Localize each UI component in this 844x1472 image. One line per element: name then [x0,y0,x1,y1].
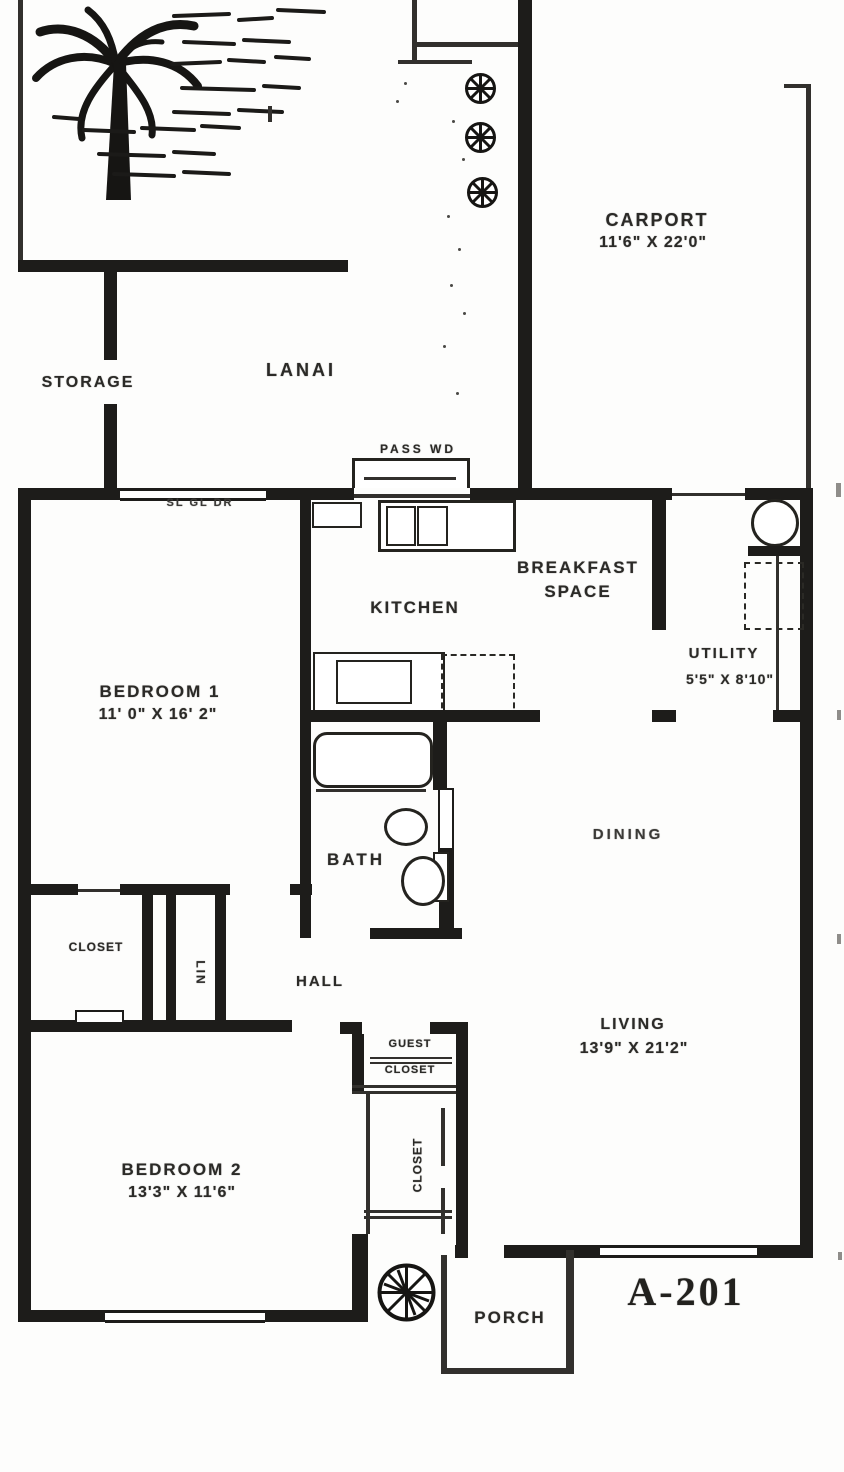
room-label-linen: LIN [194,960,208,985]
entry-wall [412,0,417,62]
room-label-hall: HALL [296,973,344,990]
room-label-guest-closet-1: GUEST [389,1038,432,1050]
room-label-utility: UTILITY [689,645,760,662]
room-label-breakfast-2: SPACE [544,582,611,602]
south-wall [757,1245,813,1258]
room-label-porch: PORCH [474,1308,545,1328]
utility-wall [748,546,808,556]
ground-dot [463,312,466,315]
porch-wall [566,1250,574,1374]
yard-border-wall [18,0,23,262]
scan-artifact [837,710,841,720]
kitchen-range [336,660,412,704]
guest-closet-wall [352,1034,364,1092]
guest-closet-wall [340,1022,362,1034]
door-threshold [78,889,120,892]
room-dims-bedroom2: 13'3" X 11'6" [128,1184,236,1202]
door-threshold [672,493,745,496]
porch-wall [441,1255,447,1373]
shrub-icon [464,72,497,105]
storage-wall [104,260,117,360]
bath-top-wall [300,710,540,722]
room-label-guest-closet-2: CLOSET [385,1064,436,1076]
storage-wall [104,404,117,500]
south-wall [504,1245,600,1258]
room-dims-bedroom1: 11' 0" X 16' 2" [99,706,218,724]
room-label-closet1: CLOSET [69,940,124,954]
hall-bottom-wall [18,1020,292,1032]
bathtub [313,732,433,788]
lanai-top-wall [18,260,348,272]
closet-wall [215,893,226,1024]
ground-dot [404,82,407,85]
ground-dot [452,120,455,123]
closet-door-line [366,1094,370,1234]
kitchen-cabinet [312,502,362,528]
room-label-bedroom1: BEDROOM 1 [100,682,221,702]
utility-wall [773,710,813,722]
kitchen-sink-bowl [386,506,416,546]
room-dims-utility: 5'5" X 8'10" [686,671,774,687]
room-dims-carport: 11'6" X 22'0" [599,234,707,252]
carport-edge [784,84,811,88]
west-wall [18,488,31,1322]
ground-dot [456,392,459,395]
window [105,1310,265,1323]
closet-shelf-line [370,1057,452,1059]
kitchen-sink-bowl [417,506,448,546]
room-label-closet2: CLOSET [410,1138,424,1193]
sliding-door-label: SL GL DR [167,497,234,509]
hall-top-wall [18,884,78,895]
ground-dot [450,284,453,287]
scan-artifact [836,483,841,497]
bathtub-edge [316,789,426,792]
room-label-bath: BATH [327,850,385,870]
shrub-icon [464,121,497,154]
closet-shelf-line [364,1210,452,1213]
room-label-bedroom2: BEDROOM 2 [122,1160,243,1180]
yard-mark [268,106,272,122]
ground-dot [443,345,446,348]
carport-divider-wall [518,0,532,492]
room-label-storage: STORAGE [42,374,135,392]
floor-plan-sheet: CARPORT 11'6" X 22'0" STORAGE LANAI SL G… [0,0,844,1472]
carport-edge [806,84,811,490]
closet-shelf-line [364,1216,452,1219]
room-label-carport: CARPORT [606,210,709,231]
pass-through-window-line [364,477,456,480]
ground-dot [396,100,399,103]
south-wall [18,1310,105,1322]
room-label-kitchen: KITCHEN [370,598,460,618]
bath-door [438,788,454,852]
closet-wall-line [352,1085,456,1088]
pass-through-window [352,458,470,488]
north-wall [532,488,672,500]
washer-dryer-dashed [744,562,804,630]
room-dims-living: 13'9" X 21'2" [580,1040,689,1058]
door-threshold [75,1010,124,1024]
unit-number: A-201 [627,1268,744,1315]
utility-wall [652,710,676,722]
pass-window-sill [354,494,470,498]
tree-icon [376,1262,437,1323]
room-label-breakfast-1: BREAKFAST [517,558,639,578]
scan-artifact [837,934,841,944]
ground-dot [447,215,450,218]
window [600,1245,757,1258]
bath-bottom-wall [370,928,462,939]
refrigerator-dashed [441,654,515,718]
utility-partition [776,556,779,712]
room-label-lanai: LANAI [266,360,336,381]
closet-wall [166,893,176,1024]
pass-window-label: PASS WD [380,442,456,456]
entry-wall [412,42,520,47]
toilet [401,856,445,906]
north-wall [18,488,120,500]
closet-door-line [441,1108,445,1166]
ground-dot [462,158,465,161]
entry-wall [398,60,472,64]
ground-dot [458,248,461,251]
shrub-icon [466,176,499,209]
breakfast-utility-wall [652,488,666,630]
bedroom2-east-wall [352,1234,368,1322]
palm-tree-illustration [24,2,364,207]
north-wall [470,488,532,500]
south-wall [455,1245,468,1258]
south-wall [265,1310,358,1322]
room-label-living: LIVING [600,1016,665,1034]
porch-wall [441,1368,574,1374]
bath-east-wall [433,718,447,790]
scan-artifact [838,1252,842,1260]
closet-east-wall [456,1022,468,1248]
water-heater [751,499,799,547]
hall-top-wall [290,884,312,895]
room-label-dining: DINING [593,826,664,843]
sink [384,808,428,846]
closet-wall [142,893,153,1024]
